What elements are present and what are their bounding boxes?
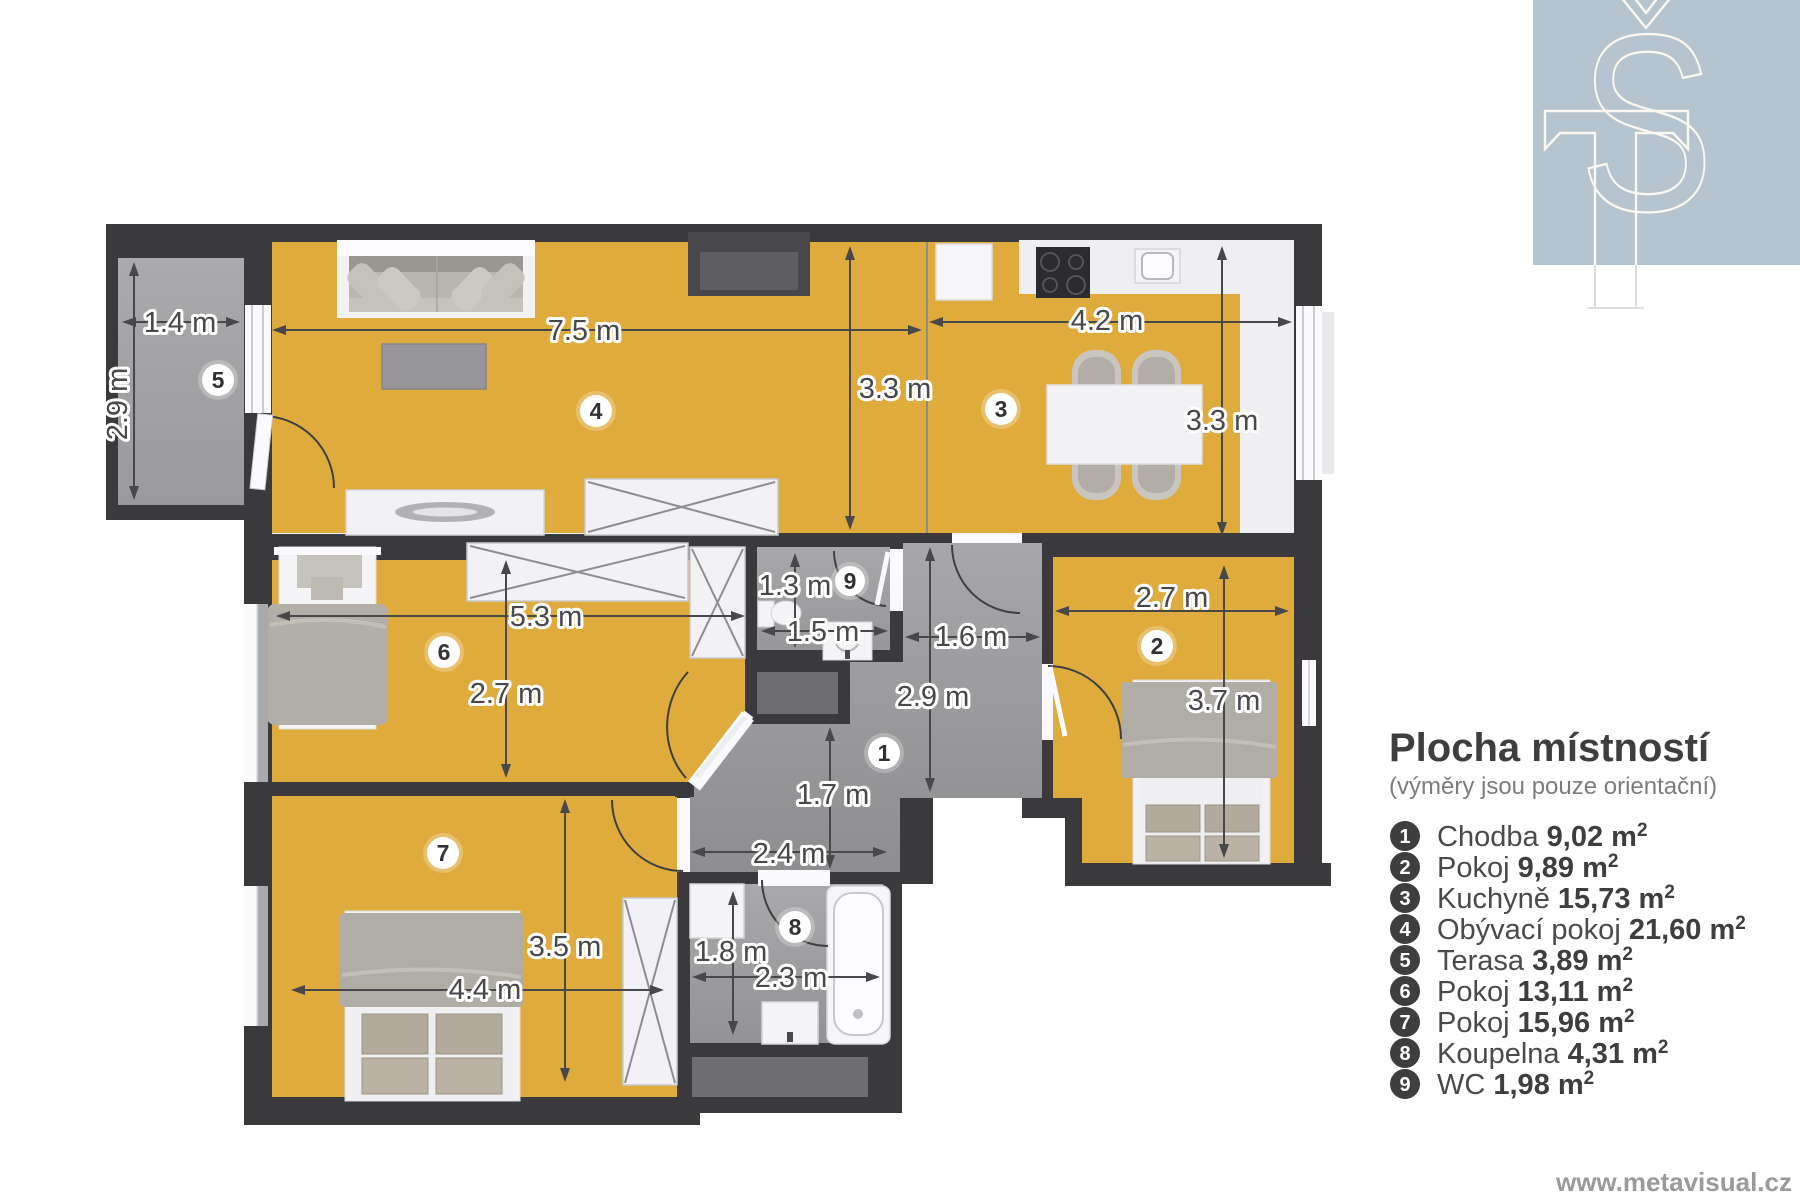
svg-text:Terasa 3,89 m2: Terasa 3,89 m2: [1437, 944, 1633, 977]
svg-text:1.4 m: 1.4 m: [144, 307, 217, 339]
svg-text:7: 7: [1399, 1012, 1410, 1034]
svg-text:1.7 m: 1.7 m: [797, 779, 870, 811]
svg-text:2.9 m: 2.9 m: [102, 368, 134, 441]
svg-text:6: 6: [1399, 981, 1410, 1003]
svg-text:4: 4: [1399, 919, 1411, 941]
svg-text:Pokoj 15,96 m2: Pokoj 15,96 m2: [1437, 1006, 1635, 1039]
svg-text:2: 2: [1151, 633, 1164, 659]
svg-text:5.3 m: 5.3 m: [510, 601, 583, 633]
svg-text:Obývací pokoj 21,60 m2: Obývací pokoj 21,60 m2: [1437, 913, 1746, 946]
svg-text:9: 9: [1399, 1074, 1410, 1096]
svg-text:Kuchyně 15,73 m2: Kuchyně 15,73 m2: [1437, 882, 1675, 915]
svg-text:Koupelna 4,31 m2: Koupelna 4,31 m2: [1437, 1037, 1669, 1070]
svg-text:8: 8: [1399, 1043, 1410, 1065]
svg-text:4: 4: [590, 398, 603, 424]
svg-text:Pokoj 13,11 m2: Pokoj 13,11 m2: [1437, 975, 1633, 1008]
svg-text:S: S: [1579, 0, 1713, 264]
svg-text:7: 7: [437, 840, 450, 866]
svg-text:4.4 m: 4.4 m: [449, 974, 522, 1006]
svg-text:WC 1,98 m2: WC 1,98 m2: [1437, 1068, 1594, 1101]
svg-text:4.2 m: 4.2 m: [1071, 305, 1144, 337]
svg-text:1.6 m: 1.6 m: [935, 621, 1008, 653]
svg-text:1: 1: [1399, 826, 1410, 848]
svg-text:1.5 m: 1.5 m: [787, 616, 860, 648]
svg-text:2.9 m: 2.9 m: [897, 681, 970, 713]
svg-text:3: 3: [1399, 888, 1410, 910]
svg-text:7.5 m: 7.5 m: [548, 315, 621, 347]
svg-text:5: 5: [212, 367, 225, 393]
svg-text:www.metavisual.cz: www.metavisual.cz: [1555, 1167, 1792, 1197]
svg-text:3.3 m: 3.3 m: [1186, 405, 1259, 437]
svg-text:2.3 m: 2.3 m: [755, 962, 828, 994]
svg-text:2.4 m: 2.4 m: [753, 838, 826, 870]
svg-text:2.7 m: 2.7 m: [1136, 582, 1209, 614]
svg-text:3.3 m: 3.3 m: [859, 373, 932, 405]
svg-text:2.7 m: 2.7 m: [470, 678, 543, 710]
svg-text:1: 1: [878, 740, 891, 766]
svg-text:9: 9: [844, 568, 857, 594]
svg-text:6: 6: [438, 639, 451, 665]
svg-text:8: 8: [789, 914, 802, 940]
svg-text:5: 5: [1399, 950, 1410, 972]
svg-text:3.7 m: 3.7 m: [1188, 685, 1261, 717]
svg-text:1.3 m: 1.3 m: [759, 570, 832, 602]
svg-text:(výměry jsou pouze orientační): (výměry jsou pouze orientační): [1389, 773, 1717, 800]
svg-text:Plocha místností: Plocha místností: [1389, 726, 1711, 770]
svg-text:Chodba 9,02 m2: Chodba 9,02 m2: [1437, 820, 1648, 853]
svg-text:3: 3: [995, 396, 1008, 422]
svg-text:Pokoj 9,89 m2: Pokoj 9,89 m2: [1437, 851, 1618, 884]
svg-text:2: 2: [1399, 857, 1410, 879]
svg-text:3.5 m: 3.5 m: [529, 931, 602, 963]
